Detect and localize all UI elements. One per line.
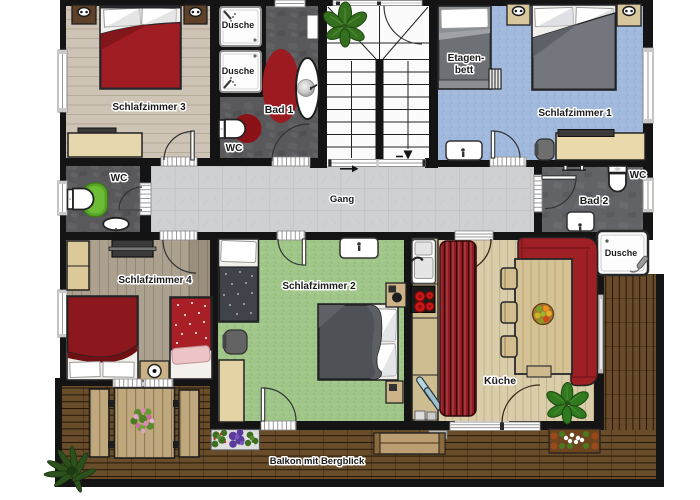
svg-text:Dusche: Dusche	[222, 66, 255, 76]
svg-text:Schlafzimmer 2: Schlafzimmer 2	[282, 281, 356, 292]
svg-text:WC: WC	[226, 143, 243, 154]
svg-text:bett: bett	[455, 65, 474, 76]
svg-text:WC: WC	[111, 173, 128, 184]
svg-text:Etagen-: Etagen-	[448, 53, 485, 64]
svg-text:Gang: Gang	[330, 194, 354, 205]
svg-text:Küche: Küche	[484, 375, 516, 387]
svg-text:Bad 2: Bad 2	[580, 195, 609, 207]
svg-text:WC: WC	[630, 170, 647, 181]
svg-text:Balkon mit Bergblick: Balkon mit Bergblick	[270, 456, 365, 467]
svg-text:Schlafzimmer 3: Schlafzimmer 3	[112, 102, 186, 113]
svg-text:Dusche: Dusche	[222, 20, 255, 30]
svg-text:Schlafzimmer 1: Schlafzimmer 1	[538, 108, 612, 119]
svg-text:Dusche: Dusche	[605, 248, 638, 258]
svg-text:Schlafzimmer 4: Schlafzimmer 4	[118, 275, 192, 286]
svg-text:Bad 1: Bad 1	[265, 104, 294, 116]
